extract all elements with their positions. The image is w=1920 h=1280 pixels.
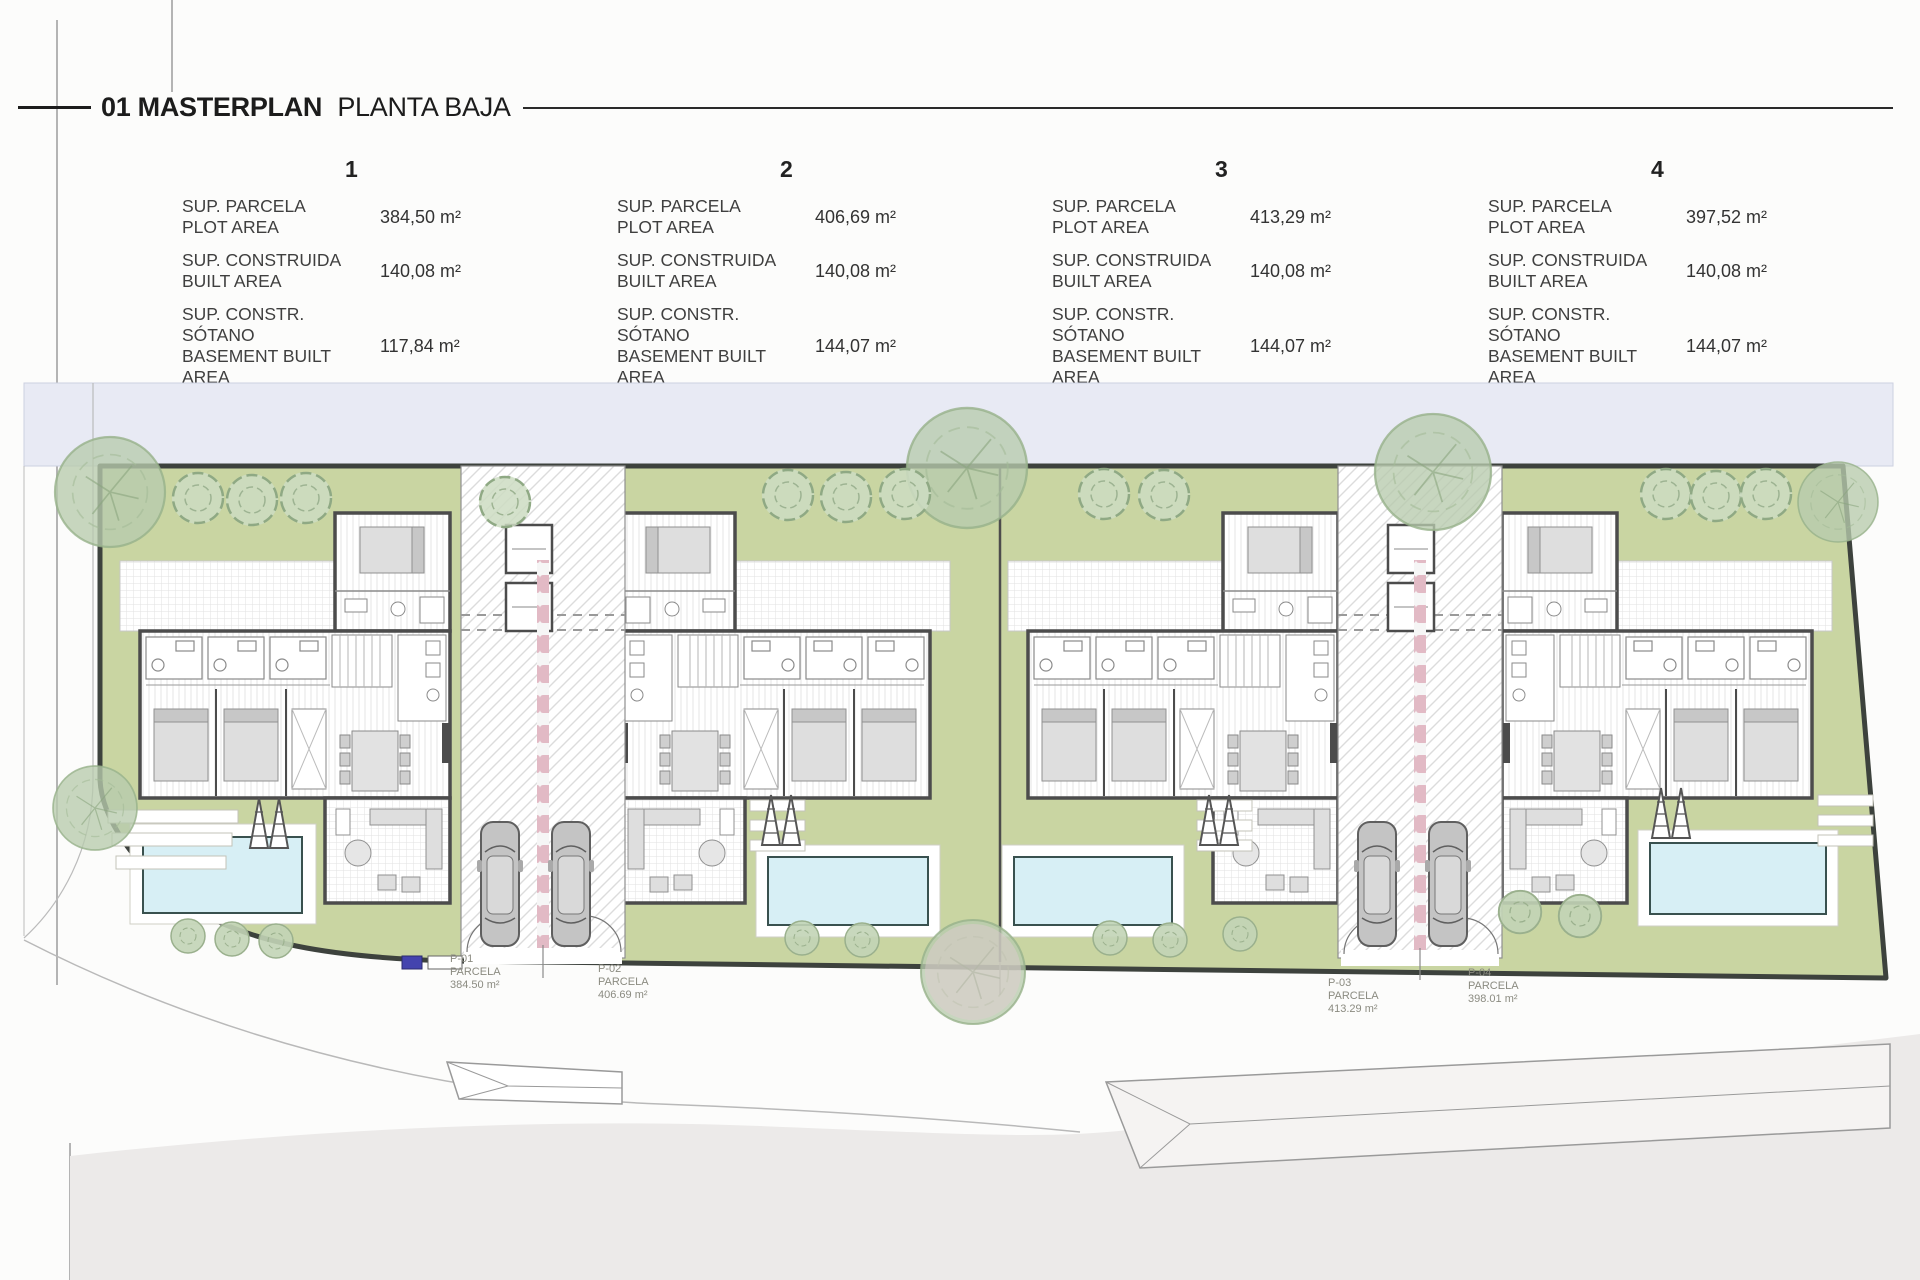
tree-icon — [280, 472, 332, 524]
tree-icon — [1093, 921, 1127, 955]
tree-icon — [55, 437, 165, 547]
parcel-id: P-03 — [1328, 977, 1351, 989]
parcel-label-3: P-03 PARCELA 413.29 m² — [1328, 977, 1379, 1015]
tree-icon — [1078, 468, 1130, 520]
tree-icon — [172, 472, 224, 524]
pool-4 — [1638, 830, 1838, 926]
parcel-id: P-02 — [598, 963, 621, 975]
parcel-type: PARCELA — [1468, 980, 1519, 992]
parcel-label-2: P-02 PARCELA 406.69 m² — [598, 963, 649, 1001]
parcel-type: PARCELA — [450, 966, 501, 978]
tree-icon — [785, 921, 819, 955]
tree-icon — [845, 923, 879, 957]
parcel-divider-pink — [1414, 560, 1426, 950]
parcel-area: 413.29 m² — [1328, 1003, 1378, 1015]
tree-icon — [879, 468, 931, 520]
tree-icon — [1153, 923, 1187, 957]
tree-icon — [820, 471, 872, 523]
tree-icon — [226, 474, 278, 526]
car-icon — [1425, 822, 1471, 946]
car-icon — [477, 822, 523, 946]
pool-2 — [756, 845, 940, 937]
tree-icon — [1223, 917, 1257, 951]
tree-icon — [479, 476, 531, 528]
tree-icon — [53, 766, 137, 850]
tree-icon — [1499, 891, 1542, 934]
tree-icon — [1740, 468, 1792, 520]
tree-icon — [762, 469, 814, 521]
tree-icon — [1138, 469, 1190, 521]
tree-icon — [1690, 470, 1742, 522]
tree-icon — [259, 924, 293, 958]
parcel-divider-pink — [537, 560, 549, 950]
tree-icon — [171, 919, 205, 953]
car-icon — [548, 822, 594, 946]
parcel-area: 398.01 m² — [1468, 993, 1518, 1005]
parcel-type: PARCELA — [598, 976, 649, 988]
tree-icon — [1375, 414, 1491, 530]
tree-icon — [215, 922, 249, 956]
tree-icon — [1559, 895, 1602, 938]
parcel-id: P-04 — [1468, 967, 1491, 979]
parcel-area: 384.50 m² — [450, 979, 500, 991]
masterplan-sheet: 01 MASTERPLAN PLANTA BAJA 1 SUP. PARCELA… — [0, 0, 1920, 1280]
neighbor-roof-small — [447, 1062, 622, 1104]
site-plan: P-01 PARCELA 384.50 m² P-02 PARCELA 406.… — [0, 0, 1920, 1280]
parcel-area: 406.69 m² — [598, 989, 648, 1001]
tree-icon — [1798, 462, 1878, 542]
tree-icon — [921, 920, 1025, 1024]
parcel-type: PARCELA — [1328, 990, 1379, 1002]
tree-icon — [1640, 468, 1692, 520]
pool-3 — [1002, 845, 1184, 937]
parcel-id: P-01 — [450, 953, 473, 965]
car-icon — [1354, 822, 1400, 946]
